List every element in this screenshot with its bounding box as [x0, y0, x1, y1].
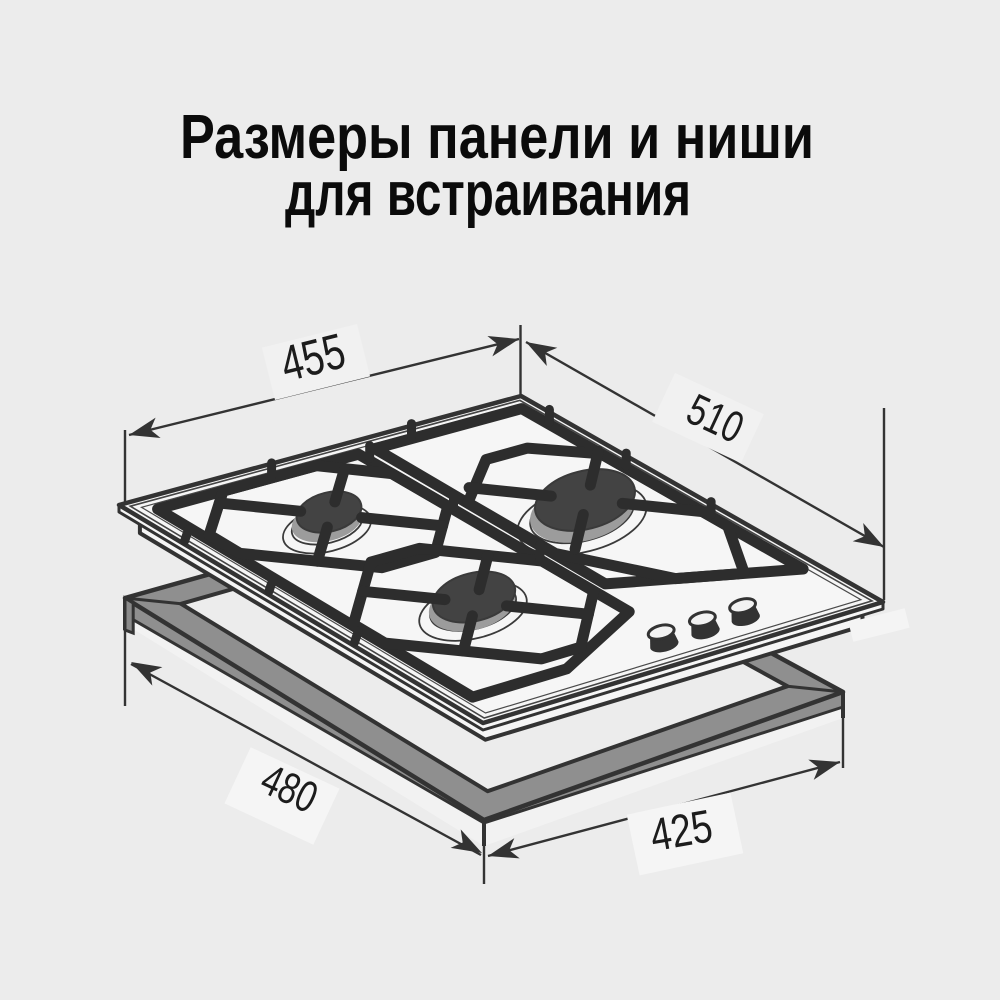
svg-text:425: 425 — [646, 799, 716, 861]
svg-text:для встраивания: для встраивания — [285, 160, 691, 229]
